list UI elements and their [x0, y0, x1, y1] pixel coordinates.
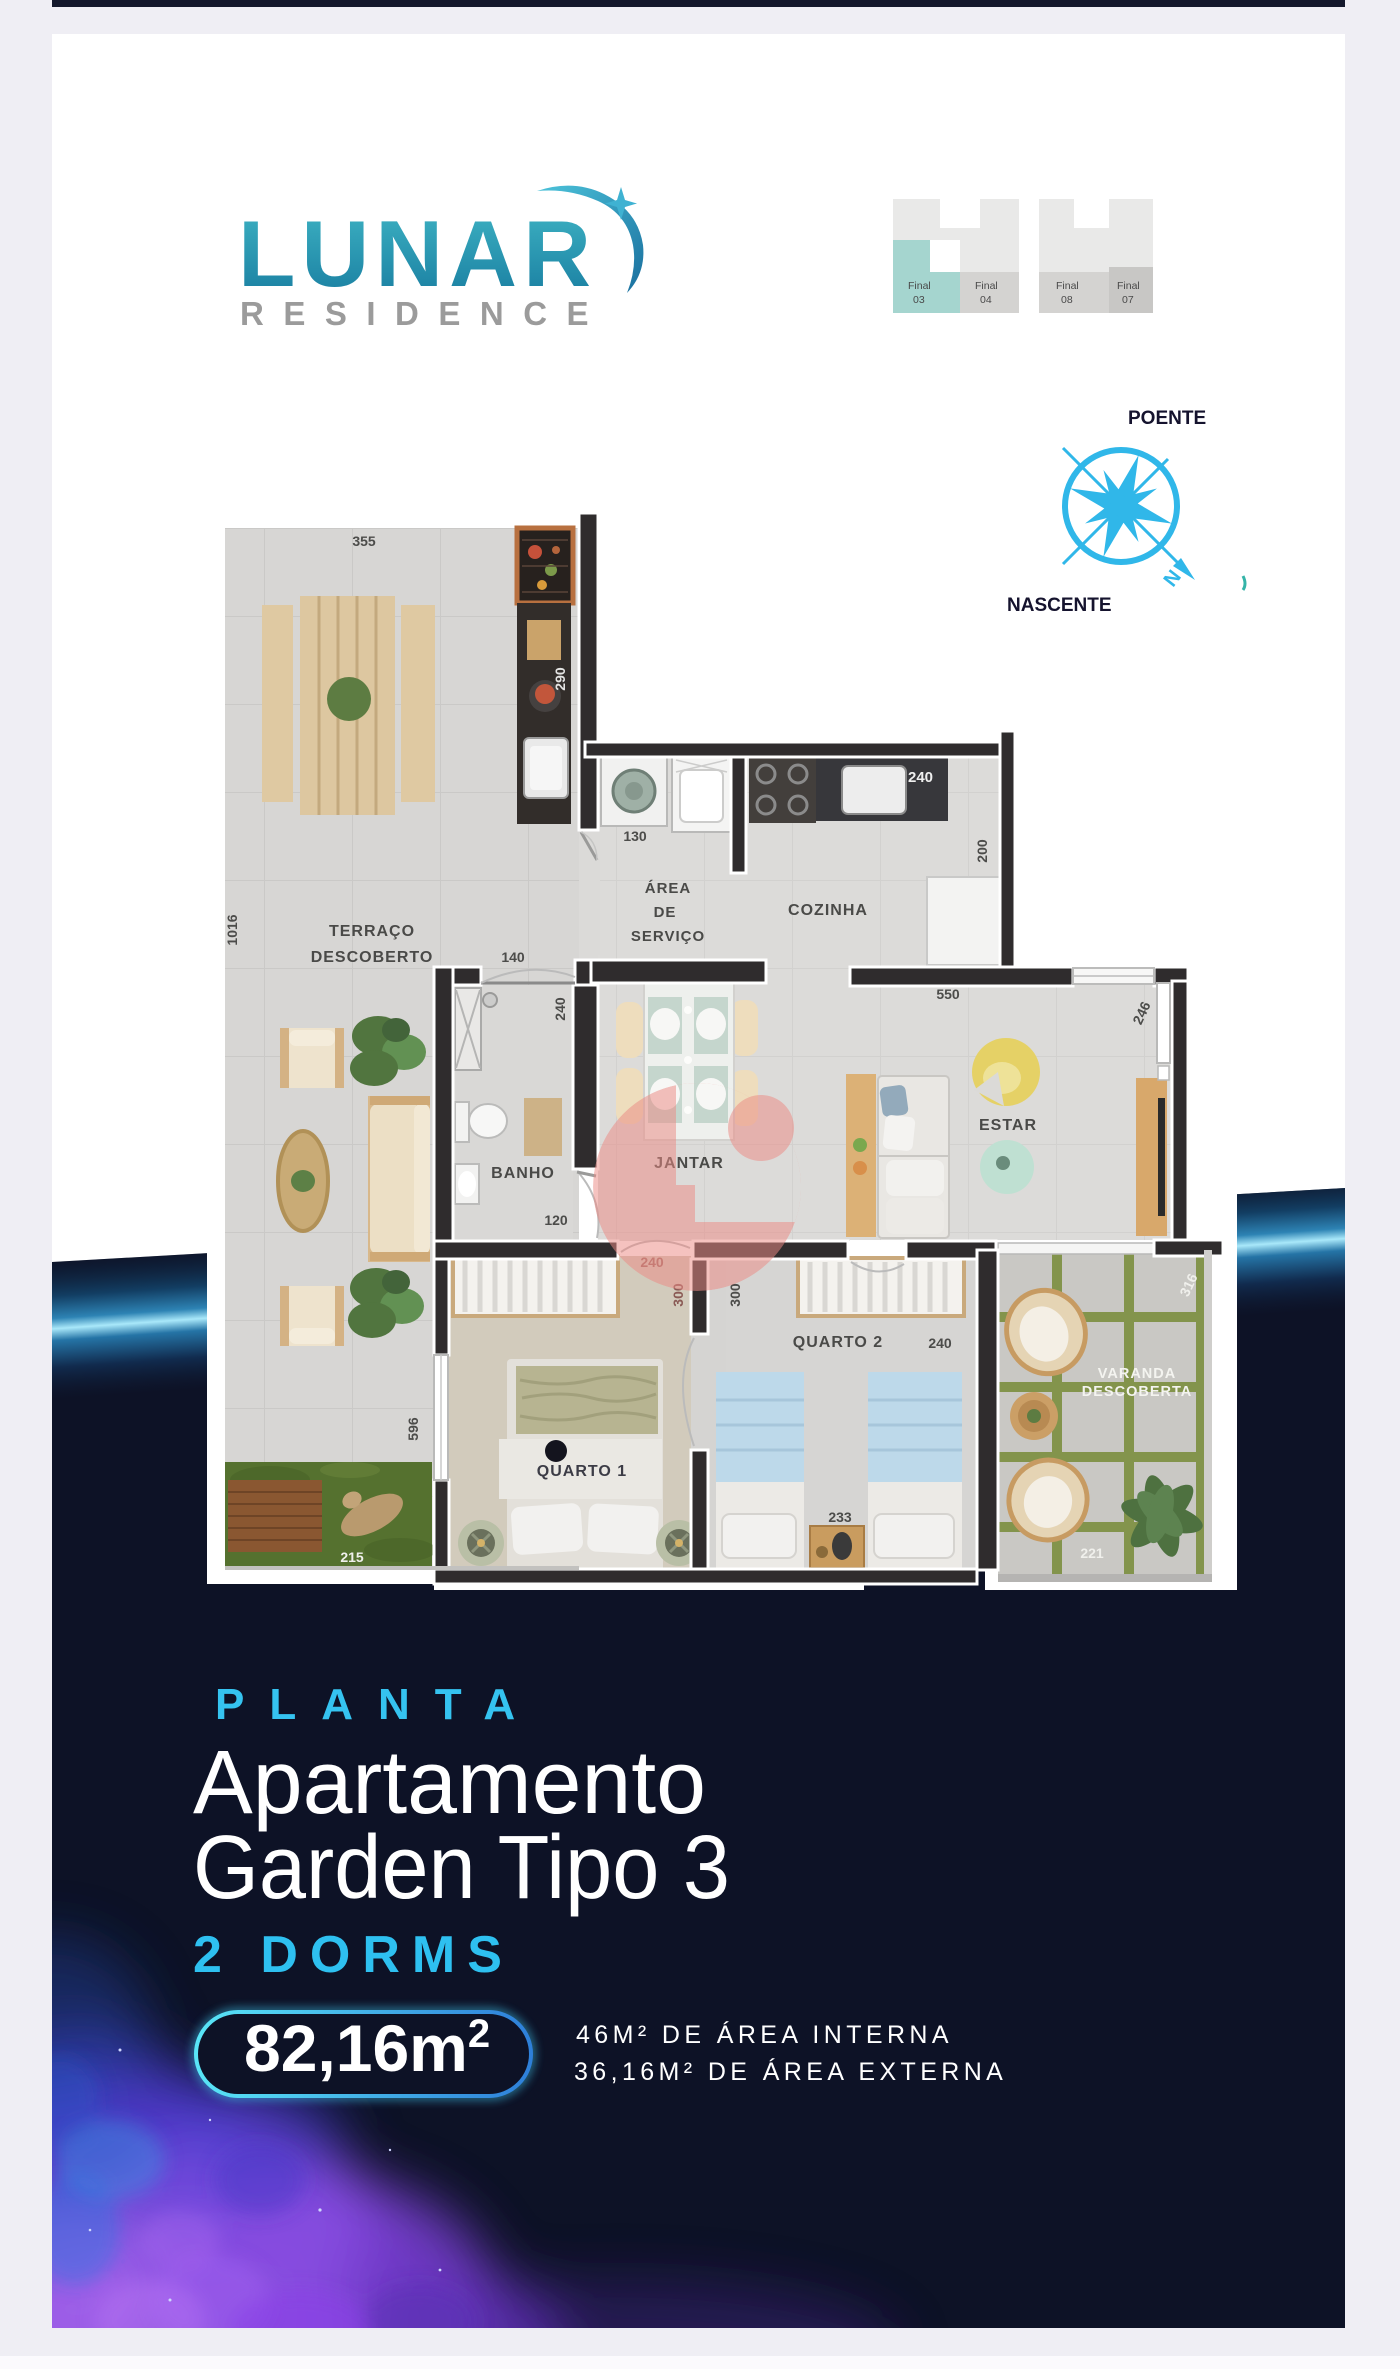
svg-text:Final: Final: [908, 280, 931, 292]
svg-text:PLANTA: PLANTA: [215, 1680, 540, 1729]
svg-text:QUARTO 1: QUARTO 1: [537, 1463, 627, 1480]
svg-text:ESTAR: ESTAR: [979, 1117, 1037, 1134]
svg-text:240: 240: [552, 997, 568, 1021]
svg-text:BANHO: BANHO: [491, 1165, 555, 1182]
svg-text:221: 221: [1080, 1545, 1104, 1561]
svg-text:DE: DE: [654, 904, 677, 921]
svg-text:240: 240: [908, 769, 933, 786]
svg-text:DESCOBERTA: DESCOBERTA: [1082, 1384, 1192, 1400]
svg-text:1016: 1016: [224, 914, 240, 945]
svg-text:DESCOBERTO: DESCOBERTO: [311, 949, 434, 966]
svg-text:233: 233: [828, 1509, 852, 1525]
svg-text:Final: Final: [975, 280, 998, 292]
svg-text:46M² DE ÁREA INTERNA: 46M² DE ÁREA INTERNA: [576, 2020, 953, 2049]
svg-text:VARANDA: VARANDA: [1098, 1366, 1176, 1382]
svg-text:550: 550: [936, 986, 960, 1002]
svg-text:04: 04: [980, 294, 992, 306]
svg-text:36,16M² DE ÁREA EXTERNA: 36,16M² DE ÁREA EXTERNA: [574, 2057, 1007, 2086]
svg-text:COZINHA: COZINHA: [788, 902, 868, 919]
svg-text:Garden Tipo 3: Garden Tipo 3: [193, 1818, 730, 1918]
svg-text:596: 596: [405, 1417, 421, 1441]
svg-text:07: 07: [1122, 294, 1134, 306]
svg-text:LUNAR: LUNAR: [238, 201, 597, 306]
svg-text:120: 120: [544, 1212, 568, 1228]
svg-text:TERRAÇO: TERRAÇO: [329, 923, 415, 940]
svg-text:RESIDENCE: RESIDENCE: [240, 295, 608, 332]
svg-text:300: 300: [727, 1283, 743, 1307]
svg-text:ÁREA: ÁREA: [645, 880, 692, 897]
svg-text:355: 355: [352, 533, 376, 549]
svg-text:SERVIÇO: SERVIÇO: [631, 928, 705, 945]
svg-text:08: 08: [1061, 294, 1073, 306]
svg-text:240: 240: [928, 1335, 952, 1351]
svg-text:2 DORMS: 2 DORMS: [193, 1926, 514, 1984]
svg-text:Final: Final: [1117, 280, 1140, 292]
svg-text:215: 215: [340, 1549, 364, 1565]
svg-text:82,16m2: 82,16m2: [244, 2011, 490, 2085]
svg-text:POENTE: POENTE: [1128, 408, 1206, 429]
svg-text:140: 140: [501, 949, 525, 965]
svg-text:QUARTO 2: QUARTO 2: [793, 1334, 883, 1351]
svg-text:03: 03: [913, 294, 925, 306]
svg-text:NASCENTE: NASCENTE: [1007, 595, 1112, 616]
svg-text:Final: Final: [1056, 280, 1079, 292]
svg-text:290: 290: [552, 667, 568, 691]
svg-text:130: 130: [623, 828, 647, 844]
svg-text:200: 200: [974, 839, 990, 863]
